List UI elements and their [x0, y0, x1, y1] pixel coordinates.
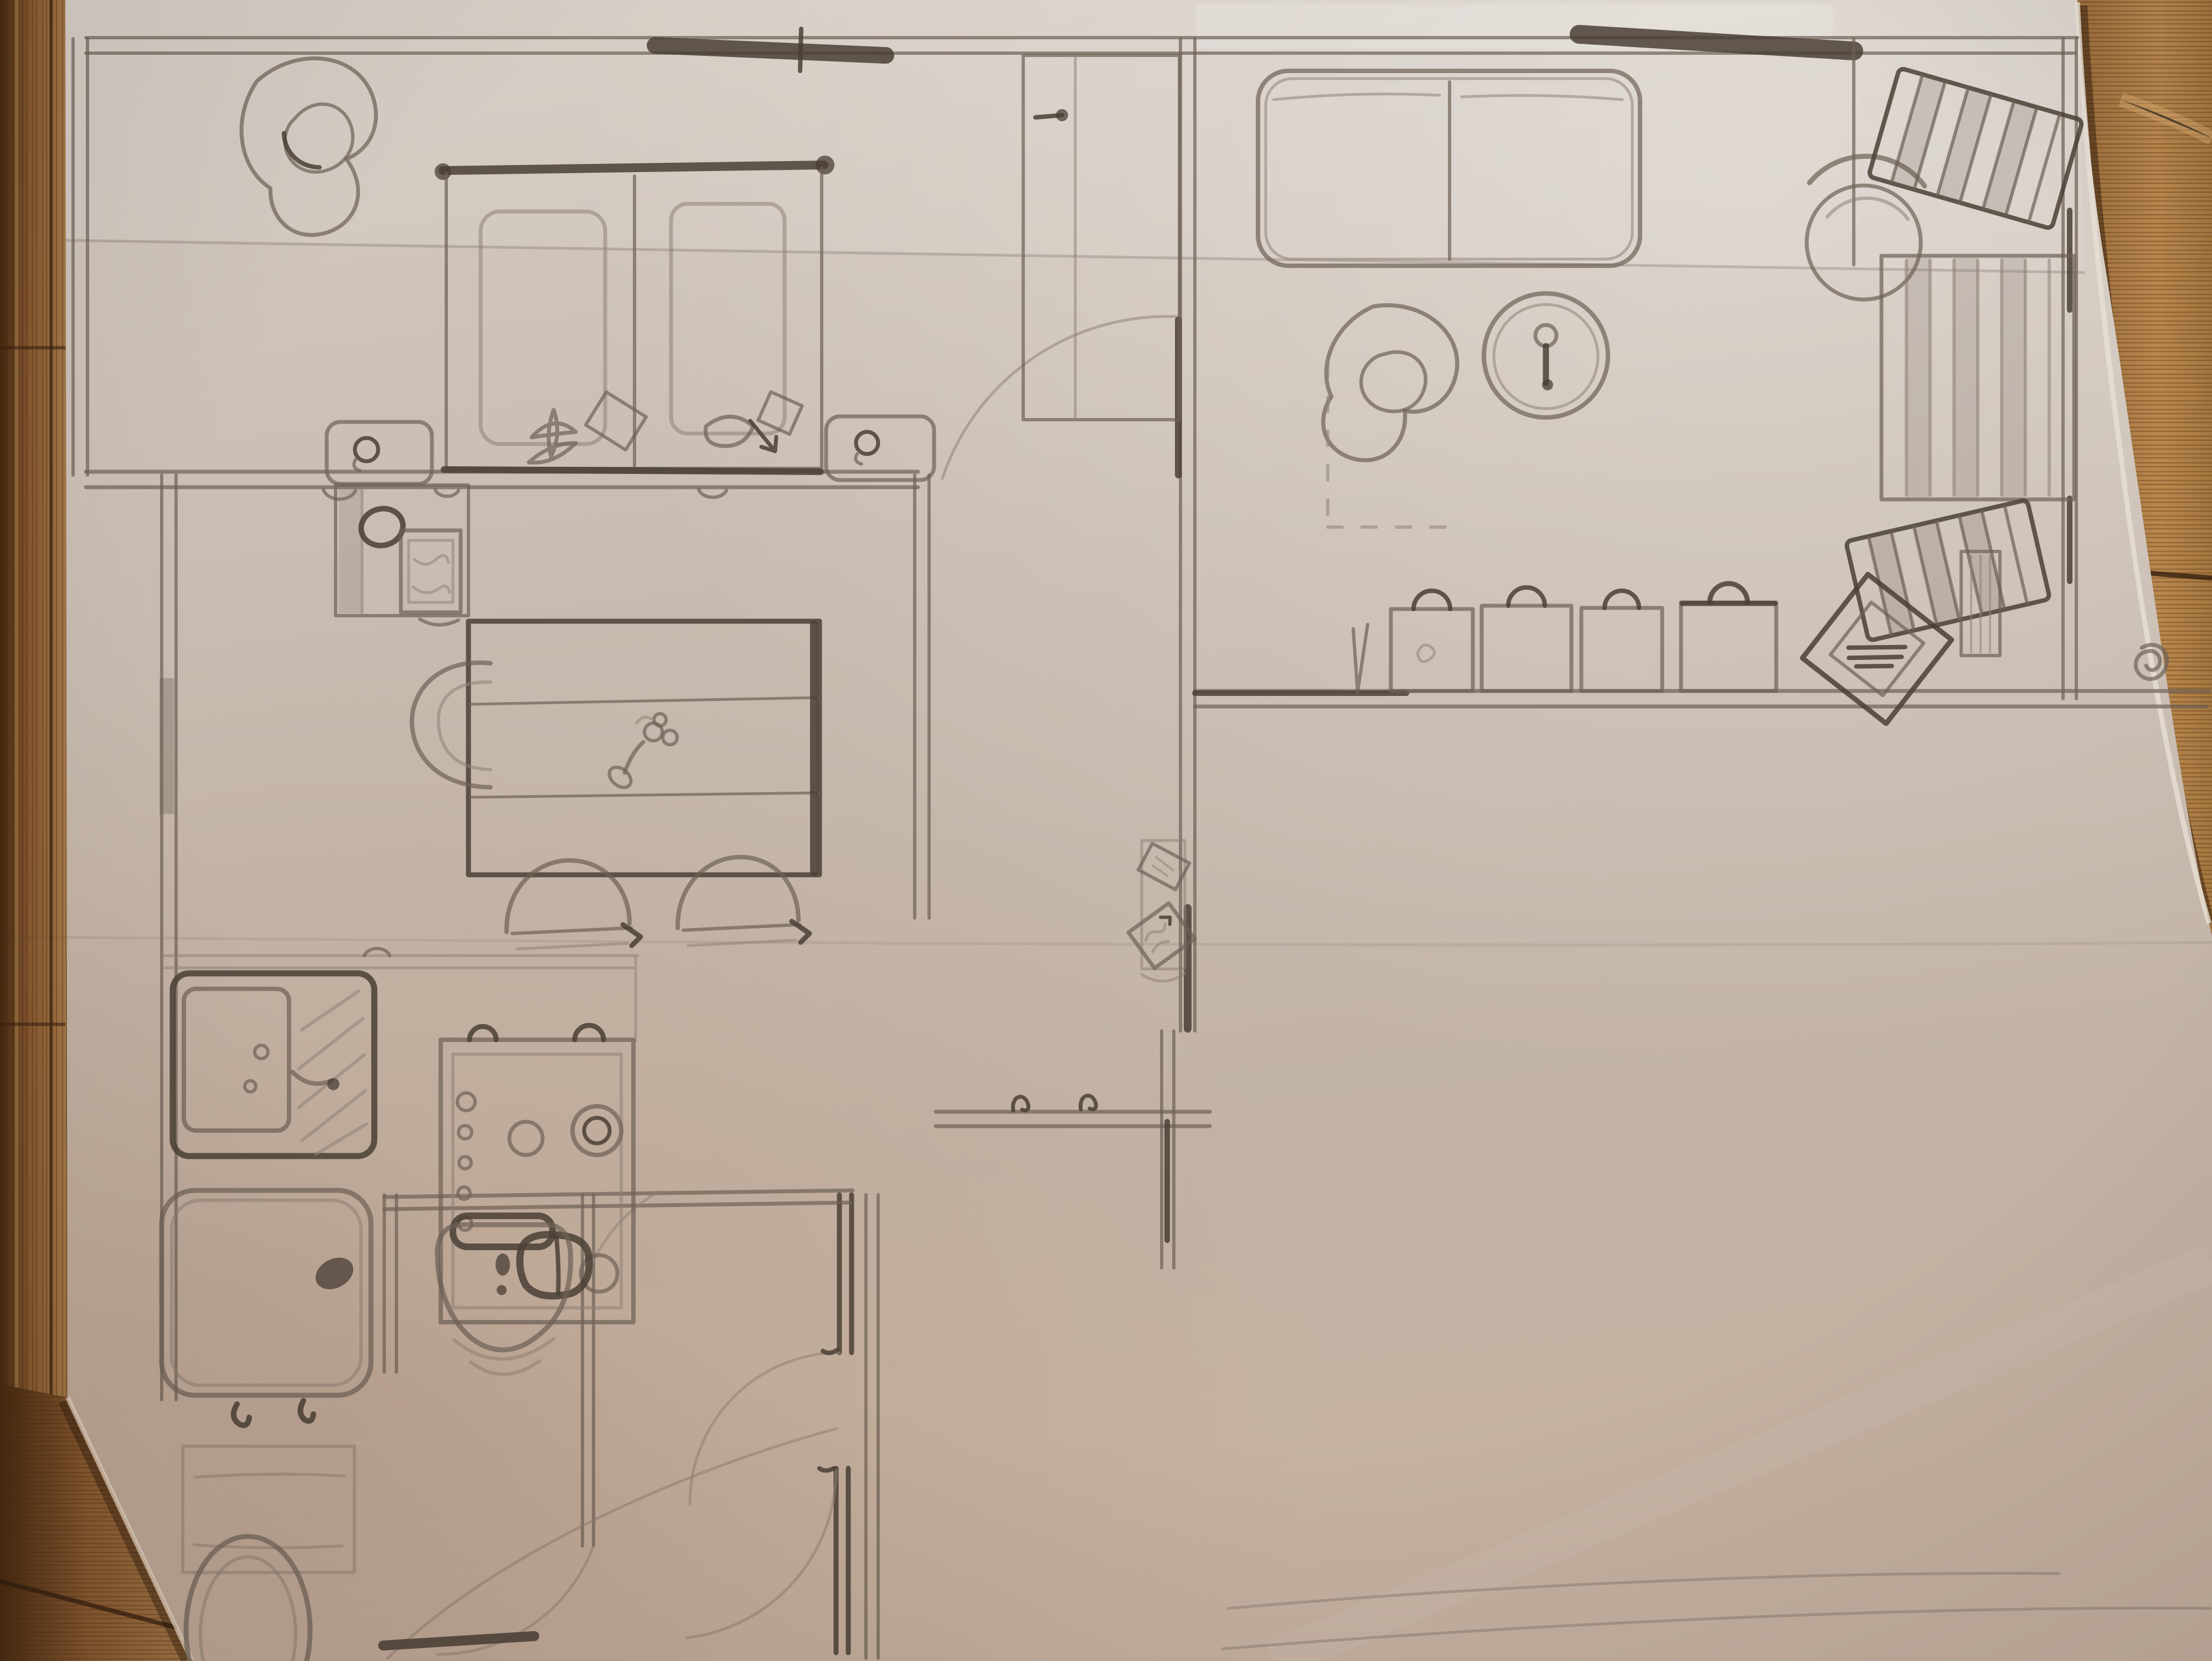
floor-plan-photo: Hand-drawn apartment floor plan, pencil … [0, 0, 2212, 1661]
photo-of-floor-plan: Hand-drawn apartment floor plan, pencil … [0, 0, 2212, 1661]
photo-vignette [0, 0, 2212, 1661]
